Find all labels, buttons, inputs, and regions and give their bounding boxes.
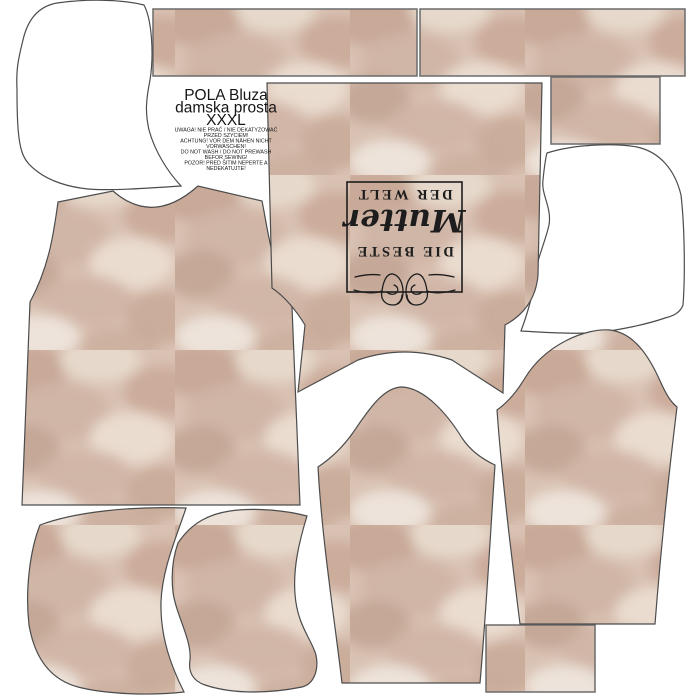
piece-top-strip-left <box>153 9 417 76</box>
care-warnings-block: UWAGA! NIE PRAĆ / NIE DEKATYZOWAĆ PRZED … <box>175 127 278 173</box>
label-text-script: Mutter <box>341 202 466 238</box>
label-text-top: DIE BESTE <box>355 243 454 259</box>
warning-line-8: NEDEKATUJTE! <box>206 166 245 172</box>
piece-small-rect-top-right <box>551 77 660 144</box>
fabric-panel: POLA Bluza damska prosta XXXL UWAGA! NIE… <box>0 0 700 700</box>
piece-hood-outline-right <box>521 145 684 334</box>
piece-back-bodice <box>22 186 300 505</box>
piece-small-rect-bottom-right <box>486 625 595 692</box>
piece-hood-fabric-bottom-center <box>172 509 317 692</box>
label-text-bottom: DER WELT <box>356 186 452 202</box>
pattern-layout-svg: POLA Bluza damska prosta XXXL UWAGA! NIE… <box>0 0 700 700</box>
title-line-3: XXXL <box>206 112 246 129</box>
piece-top-strip-right <box>420 9 685 76</box>
